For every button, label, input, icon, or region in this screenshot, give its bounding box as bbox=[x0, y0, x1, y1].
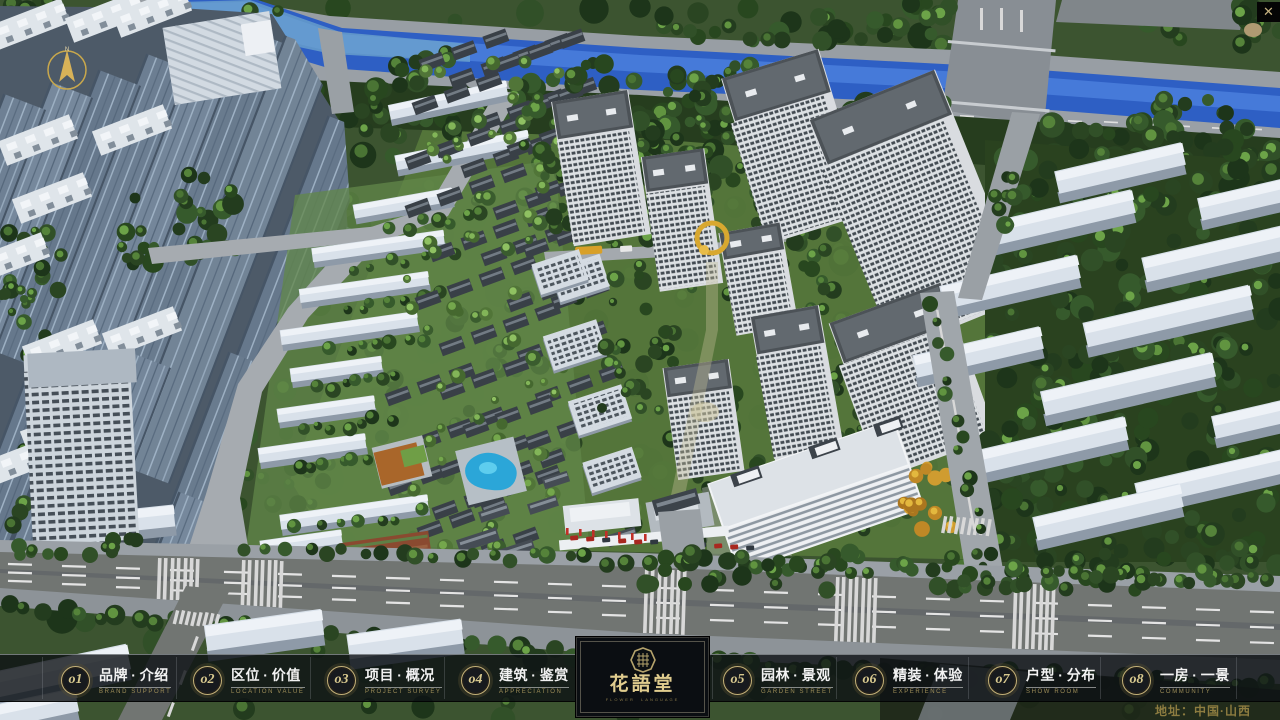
svg-text:N: N bbox=[65, 47, 69, 53]
